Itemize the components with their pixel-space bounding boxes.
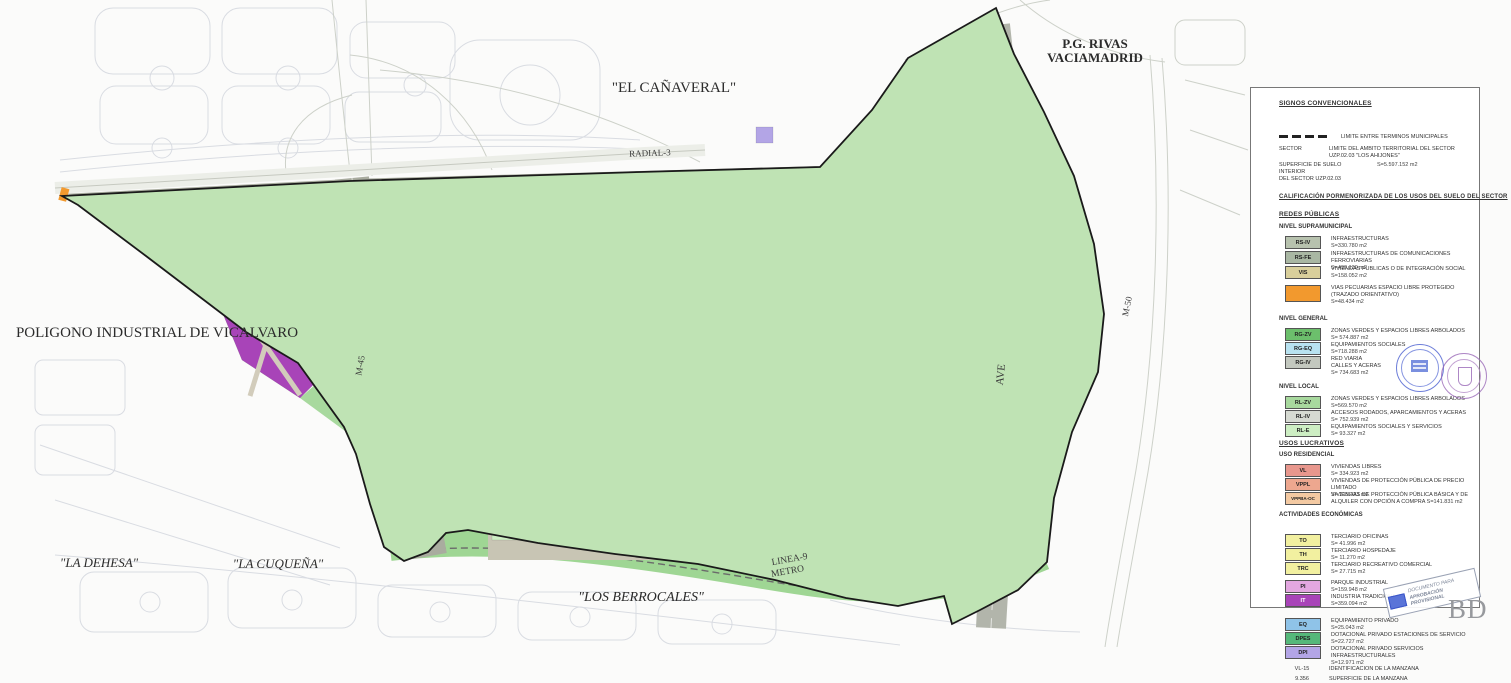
- manzana-id-row: VL-15 IDENTIFICACION DE LA MANZANA: [1285, 666, 1419, 673]
- interior-surface-row: SUPERFICIE DE SUELO INTERIOR DEL SECTOR …: [1279, 162, 1418, 183]
- legend-row-pi: PI PARQUE INDUSTRIALS=159.948 m2: [1285, 580, 1388, 594]
- residencial-title: USO RESIDENCIAL: [1279, 452, 1334, 458]
- legend-row-vias-pecuarias: VIAS PECUARIAS ESPACIO LIBRE PROTEGIDO (…: [1285, 285, 1479, 306]
- legend-row-dpes: DPES DOTACIONAL PRIVADO ESTACIONES DE SE…: [1285, 632, 1465, 646]
- zoning-map[interactable]: "EL CAÑAVERAL" P.G. RIVAS VACIAMADRID PO…: [0, 0, 1250, 647]
- legend-row-vl: VL VIVIENDAS LIBRESS= 334.923 m2: [1285, 464, 1381, 478]
- legend-panel: SIGNOS CONVENCIONALES LIMITE ENTRE TERMI…: [1250, 87, 1480, 608]
- supra-title: NIVEL SUPRAMUNICIPAL: [1279, 224, 1352, 230]
- sector-limit-row: SECTOR LIMITE DEL AMBITO TERRITORIAL DEL…: [1279, 146, 1479, 160]
- economicas-title: ACTIVIDADES ECONÓMICAS: [1279, 512, 1363, 518]
- label-ave: AVE: [994, 363, 1008, 386]
- legend-row-to: TO TERCIARIO OFICINASS= 41.996 m2: [1285, 534, 1388, 548]
- legend-row-rliv: RL-IV ACCESOS RODADOS, APARCAMIENTOS Y A…: [1285, 410, 1466, 424]
- label-pg-rivas-1: P.G. RIVAS: [1062, 36, 1127, 51]
- stamp-flag-icon: [1388, 593, 1407, 609]
- municipal-limit-row: LIMITE ENTRE TERMINOS MUNICIPALES: [1279, 134, 1448, 141]
- legend-row-eq: EQ EQUIPAMIENTO PRIVADOS=25.043 m2: [1285, 618, 1399, 632]
- label-m50: M-50: [1120, 295, 1134, 317]
- ayuntamiento-stamp: [1441, 353, 1487, 399]
- label-el-canaveral: "EL CAÑAVERAL": [612, 80, 736, 96]
- legend-row-rgzv: RG-ZV ZONAS VERDES Y ESPACIOS LIBRES ARB…: [1285, 328, 1465, 342]
- legend-row-rlzv: RL-ZV ZONAS VERDES Y ESPACIOS LIBRES ARB…: [1285, 396, 1465, 410]
- legend-row-it: IT INDUSTRIA TRADICIONALS=359.094 m2: [1285, 594, 1399, 608]
- label-radial3: RADIAL-3: [629, 147, 671, 158]
- dashed-line-symbol: [1279, 134, 1331, 140]
- sector-boundary: [62, 8, 1104, 624]
- label-los-berrocales: "LOS BERROCALES": [578, 590, 704, 605]
- local-title: NIVEL LOCAL: [1279, 384, 1319, 390]
- redes-title: REDES PÚBLICAS: [1279, 211, 1339, 218]
- legend-row-dpi: DPI DOTACIONAL PRIVADO SERVICIOS INFRAES…: [1285, 646, 1479, 667]
- label-la-dehesa: "LA DEHESA": [60, 555, 139, 570]
- manzana-surface-row: 9.356 SUPERFICIE DE LA MANZANA: [1285, 676, 1408, 683]
- label-pg-rivas-2: VACIAMADRID: [1047, 50, 1143, 65]
- legend-row-trc: TRC TERCIARIO RECREATIVO COMERCIALS= 27.…: [1285, 562, 1432, 576]
- legend-row-rle: RL-E EQUIPAMIENTOS SOCIALES Y SERVICIOSS…: [1285, 424, 1442, 438]
- label-la-cuquena: "LA CUQUEÑA": [233, 556, 324, 571]
- general-title: NIVEL GENERAL: [1279, 316, 1328, 322]
- legend-row-rsiv: RS-IV INFRAESTRUCTURASS=330.780 m2: [1285, 236, 1389, 250]
- legend-title: SIGNOS CONVENCIONALES: [1279, 100, 1372, 107]
- label-poligono-vicalvaro: POLIGONO INDUSTRIAL DE VICALVARO: [16, 325, 298, 341]
- sector-word: SECTOR: [1279, 146, 1302, 152]
- lucrativos-title: USOS LUCRATIVOS: [1279, 440, 1344, 447]
- legend-row-rgeq: RG-EQ EQUIPAMIENTOS SOCIALESS=718.288 m2: [1285, 342, 1405, 356]
- legend-row-vppba: VPPBA-OC VIVIENDAS DE PROTECCIÓN PÚBLICA…: [1285, 492, 1479, 506]
- legend-row-rgiv: RG-IV RED VIARIACALLES Y ACERASS= 734.68…: [1285, 356, 1381, 377]
- legend-row-vis: VIS VIVIENDAS PUBLICAS O DE INTEGRACIÓN …: [1285, 266, 1465, 280]
- sheet-code: BD: [1448, 594, 1488, 625]
- calification-title: CALIFICACIÓN PORMENORIZADA DE LOS USOS D…: [1279, 194, 1508, 200]
- comunidad-madrid-stamp: [1396, 344, 1444, 392]
- legend-row-th: TH TERCIARIO HOSPEDAJES= 11.270 m2: [1285, 548, 1396, 562]
